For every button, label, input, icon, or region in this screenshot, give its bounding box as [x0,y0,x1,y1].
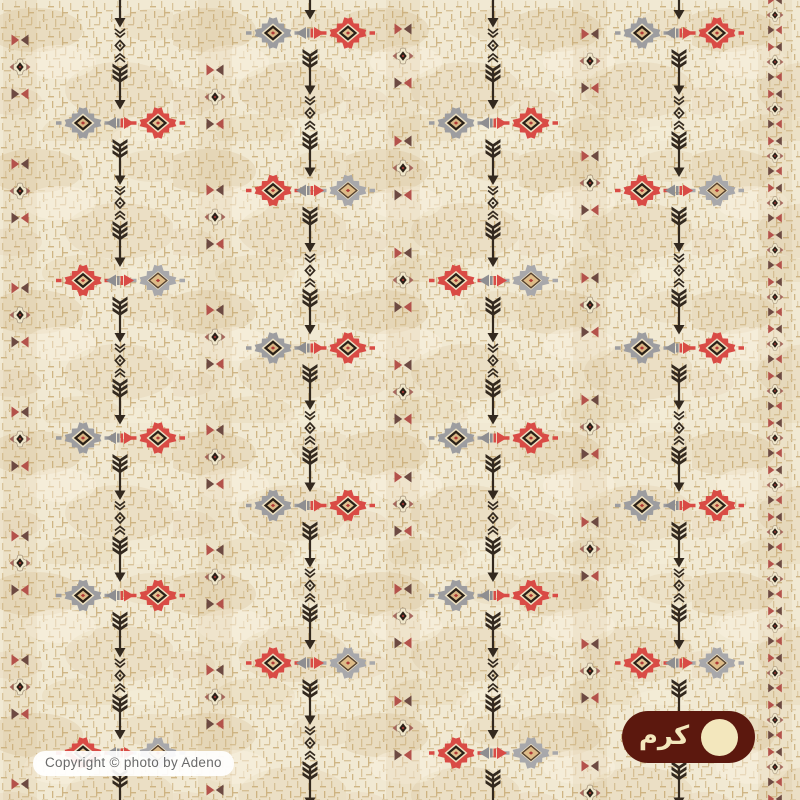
watermark-pill: Copyright © photo by Adeno [33,751,234,776]
border-band [3,0,37,800]
chevron-diamond-separator-icon [115,187,125,220]
chevron-diamond-separator-icon [488,29,498,62]
chevron-diamond-separator-icon [305,97,315,130]
chevron-diamond-separator-icon [674,412,684,445]
chevron-diamond-separator-icon [674,569,684,602]
chevron-diamond-separator-icon [488,502,498,535]
chevron-diamond-separator-icon [488,659,498,692]
border-band [198,0,232,800]
watermark-text: Copyright © photo by Adeno [45,755,222,770]
fabric-pattern-image [0,0,800,800]
chevron-diamond-separator-icon [115,344,125,377]
chevron-diamond-separator-icon [305,254,315,287]
fabric-photo: Copyright © photo by Adeno کرم [0,0,800,800]
chevron-diamond-separator-icon [115,29,125,62]
chevron-diamond-separator-icon [488,344,498,377]
chevron-diamond-separator-icon [305,727,315,760]
chevron-diamond-separator-icon [674,97,684,130]
chevron-diamond-separator-icon [305,412,315,445]
chevron-diamond-separator-icon [115,659,125,692]
brand-badge-label: کرم [639,723,689,749]
brand-badge: کرم [622,711,755,763]
chevron-diamond-separator-icon [488,187,498,220]
badge-circle-icon [701,719,738,756]
border-band [758,0,792,800]
chevron-diamond-separator-icon [305,569,315,602]
chevron-diamond-separator-icon [115,502,125,535]
border-band [573,0,607,800]
chevron-diamond-separator-icon [674,254,684,287]
border-band [386,0,420,800]
